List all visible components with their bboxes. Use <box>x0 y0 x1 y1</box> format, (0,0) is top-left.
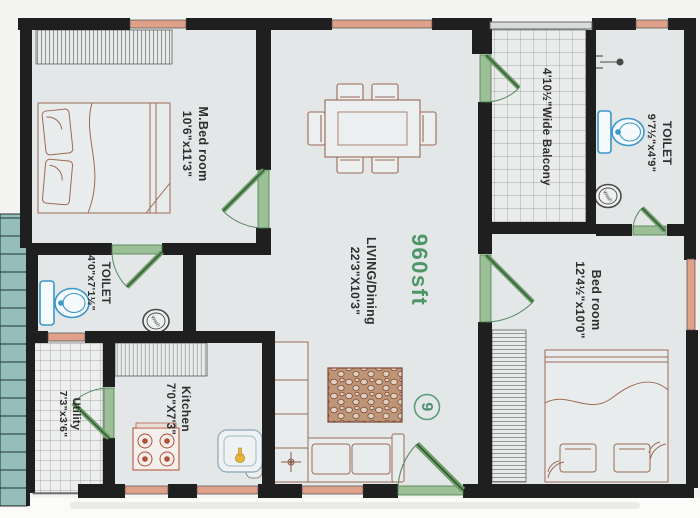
kitchen-sink <box>218 430 262 472</box>
bedroom-bed <box>545 350 668 482</box>
door-number: 9 <box>418 402 435 411</box>
plan-shadow <box>70 502 640 509</box>
window-bottom-kitchen <box>125 486 168 494</box>
floor-plan-drawing: Wash Wash <box>0 0 700 518</box>
label-toilet-attached-dims: 4'0"x7'1½" <box>85 255 97 311</box>
floor-plan-canvas: Wash Wash <box>0 0 700 518</box>
label-kitchen: Kitchen <box>179 386 193 432</box>
label-toilet-attached: TOILET <box>99 262 111 304</box>
window-top-toilet <box>636 20 668 28</box>
kitchen-counter <box>115 343 207 376</box>
window-top-master <box>130 20 186 28</box>
label-toilet-common-dims: 9'7½"x4'9" <box>645 114 657 172</box>
label-utility: Utility <box>70 398 82 431</box>
wash-basin-common: Wash <box>595 185 621 208</box>
window-top-living <box>332 20 432 28</box>
balcony-floor-tiles <box>490 30 586 224</box>
label-utility-dims: 7'3"x3'6" <box>57 391 69 438</box>
wash-basin-attached: Wash <box>143 310 169 333</box>
label-kitchen-dims: 7'0"X7'3" <box>164 383 176 435</box>
stairs-strip <box>0 214 27 506</box>
label-living-dims: 22'3"X10'3" <box>348 247 362 315</box>
label-living: LIVING/Dining <box>364 237 378 325</box>
balcony-parapet <box>490 22 592 29</box>
window-toilet-attached <box>48 333 85 341</box>
label-master-bedroom: M.Bed room <box>196 106 210 181</box>
label-toilet-common: TOILET <box>660 121 674 166</box>
master-bed <box>38 103 170 213</box>
bedroom-wardrobe <box>492 330 526 482</box>
window-bedroom-right <box>687 259 695 330</box>
label-area: 960sft <box>407 234 432 307</box>
label-bedroom: Bed room <box>589 270 603 331</box>
label-balcony: 4'10½"Wide Balcony <box>540 68 552 186</box>
living-rug <box>328 368 402 422</box>
master-wardrobe <box>36 30 172 64</box>
label-bedroom-dims: 12'4½"x10'0" <box>573 261 587 338</box>
window-bottom-living-left <box>197 486 258 494</box>
label-master-bedroom-dims: 10'6"x11'3" <box>180 111 194 177</box>
window-bottom-living-right <box>302 486 363 494</box>
